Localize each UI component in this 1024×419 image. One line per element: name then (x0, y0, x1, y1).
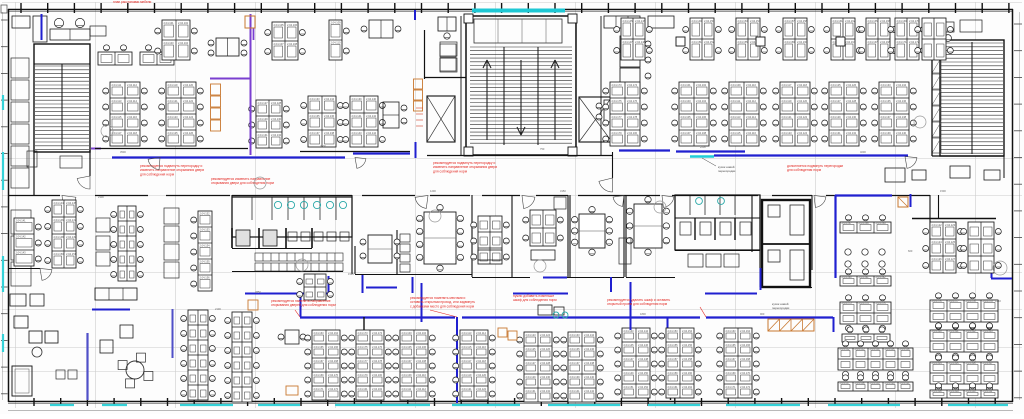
svg-text:2.04.136: 2.04.136 (584, 347, 595, 351)
svg-text:для соблюдения норм: для соблюдения норм (140, 172, 175, 176)
svg-text:2.04.170: 2.04.170 (740, 371, 751, 375)
svg-text:2.04.165: 2.04.165 (314, 345, 325, 349)
svg-text:2.04.104: 2.04.104 (416, 331, 427, 335)
svg-text:2.04.112: 2.04.112 (746, 99, 756, 103)
svg-text:2.04.134: 2.04.134 (896, 83, 907, 87)
svg-text:2.04.141: 2.04.141 (570, 389, 581, 393)
svg-text:2.04.104: 2.04.104 (932, 361, 943, 365)
svg-text:2.04.126: 2.04.126 (183, 131, 194, 135)
svg-text:2.04.115: 2.04.115 (112, 115, 122, 119)
svg-text:2.04.145: 2.04.145 (624, 343, 635, 347)
svg-text:шкаф для соблюдения норм: шкаф для соблюдения норм (513, 298, 557, 302)
svg-text:2.04.109: 2.04.109 (402, 373, 413, 377)
svg-text:2.04.118: 2.04.118 (127, 131, 137, 135)
svg-text:2.04.147: 2.04.147 (66, 218, 77, 222)
svg-text:2.04.102: 2.04.102 (966, 329, 977, 333)
svg-text:2.04.154: 2.04.154 (682, 329, 693, 333)
svg-text:2.04.112: 2.04.112 (416, 387, 426, 391)
svg-text:2.04.105: 2.04.105 (681, 115, 692, 119)
svg-text:2.04.169: 2.04.169 (897, 19, 908, 23)
svg-text:2.04.112: 2.04.112 (840, 347, 850, 351)
svg-text:2.04.171: 2.04.171 (897, 40, 908, 44)
svg-text:2.04.141: 2.04.141 (16, 219, 27, 223)
svg-text:2.04.113: 2.04.113 (731, 115, 741, 119)
svg-text:2.04.108: 2.04.108 (696, 131, 707, 135)
svg-text:2.04.127: 2.04.127 (258, 101, 269, 105)
svg-text:2.04.123: 2.04.123 (782, 131, 793, 135)
svg-text:2.04.149: 2.04.149 (692, 19, 703, 23)
svg-text:600: 600 (908, 249, 913, 253)
svg-text:4000: 4000 (860, 150, 866, 154)
svg-text:2.04.108: 2.04.108 (932, 389, 943, 393)
svg-text:2.04.120: 2.04.120 (183, 83, 194, 87)
svg-text:2.04.176: 2.04.176 (372, 345, 383, 349)
svg-text:2.04.122: 2.04.122 (797, 115, 808, 119)
svg-text:2.04.103: 2.04.103 (983, 329, 994, 333)
svg-text:2.04.115: 2.04.115 (885, 347, 895, 351)
svg-text:2.04.153: 2.04.153 (738, 19, 749, 23)
svg-text:2.04.167: 2.04.167 (868, 40, 879, 44)
svg-text:2.04.172: 2.04.172 (328, 387, 339, 391)
svg-text:2.04.125: 2.04.125 (526, 347, 537, 351)
svg-text:2.04.176: 2.04.176 (932, 299, 943, 303)
svg-text:2.04.168: 2.04.168 (328, 359, 339, 363)
svg-text:2.04.153: 2.04.153 (200, 228, 211, 232)
svg-text:2.04.118: 2.04.118 (476, 359, 486, 363)
svg-text:2.04.130: 2.04.130 (540, 375, 551, 379)
svg-text:2.04.166: 2.04.166 (880, 19, 891, 23)
svg-text:2.04.101: 2.04.101 (164, 21, 175, 25)
svg-text:2.04.148: 2.04.148 (54, 235, 65, 239)
svg-text:2.04.157: 2.04.157 (668, 357, 679, 361)
svg-text:открывания двери для соблюдени: открывания двери для соблюдения норм (211, 181, 275, 185)
svg-text:2.04.101: 2.04.101 (949, 329, 960, 333)
svg-text:2.04.119: 2.04.119 (462, 373, 472, 377)
svg-text:2.04.121: 2.04.121 (168, 99, 179, 103)
svg-text:2.04.109: 2.04.109 (949, 389, 960, 393)
svg-text:2.04.170: 2.04.170 (328, 373, 339, 377)
svg-text:2.04.132: 2.04.132 (846, 131, 857, 135)
svg-text:1240: 1240 (995, 299, 1001, 303)
svg-text:2.04.140: 2.04.140 (896, 131, 907, 135)
svg-text:2.04.104: 2.04.104 (178, 41, 189, 45)
svg-text:2.04.109: 2.04.109 (331, 21, 342, 25)
svg-text:2.04.150: 2.04.150 (54, 252, 65, 256)
svg-text:2.04.177: 2.04.177 (612, 115, 623, 119)
svg-text:2200: 2200 (700, 145, 706, 149)
svg-text:2.04.106: 2.04.106 (696, 115, 707, 119)
svg-text:2.04.111: 2.04.111 (983, 389, 993, 393)
svg-text:2.04.174: 2.04.174 (627, 83, 638, 87)
svg-text:2.04.168: 2.04.168 (740, 357, 751, 361)
svg-text:2.04.105: 2.04.105 (274, 23, 285, 27)
svg-text:2.04.161: 2.04.161 (833, 19, 844, 23)
svg-text:2.04.127: 2.04.127 (526, 361, 537, 365)
svg-text:2400: 2400 (320, 144, 326, 148)
svg-text:2.04.172: 2.04.172 (909, 40, 920, 44)
svg-text:2.04.124: 2.04.124 (183, 115, 194, 119)
svg-text:2.04.102: 2.04.102 (696, 83, 707, 87)
svg-text:2.04.173: 2.04.173 (358, 331, 369, 335)
svg-text:2.04.108: 2.04.108 (416, 359, 427, 363)
svg-text:2.04.114: 2.04.114 (746, 115, 756, 119)
svg-text:2.04.130: 2.04.130 (271, 117, 282, 121)
svg-text:2.04.147: 2.04.147 (623, 40, 634, 44)
svg-text:2.04.157: 2.04.157 (842, 221, 853, 225)
svg-text:2.04.167: 2.04.167 (314, 359, 325, 363)
svg-text:2.04.159: 2.04.159 (876, 221, 887, 225)
svg-text:2.04.145: 2.04.145 (623, 19, 634, 23)
svg-text:2.04.139: 2.04.139 (881, 131, 892, 135)
svg-text:2.04.141: 2.04.141 (352, 114, 363, 118)
svg-text:2.04.173: 2.04.173 (842, 301, 853, 305)
svg-text:2.04.125: 2.04.125 (831, 83, 842, 87)
svg-text:2.04.126: 2.04.126 (846, 83, 857, 87)
svg-text:2.04.111: 2.04.111 (402, 387, 412, 391)
svg-text:2.04.156: 2.04.156 (200, 276, 211, 280)
svg-text:2.04.133: 2.04.133 (570, 333, 581, 337)
svg-text:2.04.105: 2.04.105 (949, 361, 960, 365)
svg-text:2.04.129: 2.04.129 (526, 375, 537, 379)
svg-text:открывания дверей для соблюден: открывания дверей для соблюдения норм (271, 303, 336, 307)
svg-text:2.04.151: 2.04.151 (66, 252, 77, 256)
svg-text:2.04.136: 2.04.136 (324, 114, 335, 118)
svg-text:2.04.128: 2.04.128 (271, 101, 282, 105)
svg-text:900: 900 (760, 312, 765, 316)
svg-text:2.04.132: 2.04.132 (540, 389, 551, 393)
svg-text:2.04.107: 2.04.107 (983, 361, 994, 365)
svg-text:2.04.128: 2.04.128 (540, 361, 551, 365)
svg-text:2.04.158: 2.04.158 (859, 221, 870, 225)
svg-text:2.04.110: 2.04.110 (746, 83, 756, 87)
svg-text:2.04.142: 2.04.142 (16, 235, 27, 239)
svg-text:2.04.135: 2.04.135 (310, 114, 321, 118)
svg-text:2.04.137: 2.04.137 (881, 115, 892, 119)
svg-text:2.04.110: 2.04.110 (331, 41, 341, 45)
svg-text:2.04.132: 2.04.132 (271, 133, 282, 137)
svg-text:2.04.160: 2.04.160 (797, 40, 808, 44)
svg-text:1200: 1200 (430, 189, 436, 193)
svg-text:2.04.127: 2.04.127 (831, 99, 842, 103)
svg-text:2.04.163: 2.04.163 (726, 329, 737, 333)
svg-text:2.04.114: 2.04.114 (476, 331, 486, 335)
svg-text:2.04.152: 2.04.152 (200, 212, 211, 216)
svg-text:2.04.115: 2.04.115 (731, 131, 741, 135)
svg-text:2.04.159: 2.04.159 (668, 371, 679, 375)
svg-text:2.04.134: 2.04.134 (584, 333, 595, 337)
svg-text:3500: 3500 (120, 150, 126, 154)
svg-text:2.04.123: 2.04.123 (526, 333, 537, 337)
svg-text:2.04.114: 2.04.114 (127, 99, 137, 103)
svg-text:2.04.175: 2.04.175 (876, 301, 887, 305)
svg-text:2.04.161: 2.04.161 (668, 385, 679, 389)
svg-text:2.04.163: 2.04.163 (314, 331, 325, 335)
svg-text:2.04.135: 2.04.135 (881, 99, 892, 103)
svg-text:2.04.160: 2.04.160 (682, 371, 693, 375)
svg-text:2.04.113: 2.04.113 (855, 347, 865, 351)
svg-text:2.04.169: 2.04.169 (726, 371, 737, 375)
svg-text:2.04.143: 2.04.143 (624, 329, 635, 333)
svg-text:2.04.159: 2.04.159 (785, 40, 796, 44)
svg-text:2.04.166: 2.04.166 (328, 345, 339, 349)
svg-text:2.04.148: 2.04.148 (635, 40, 646, 44)
svg-text:2.04.117: 2.04.117 (462, 359, 472, 363)
svg-text:2.04.103: 2.04.103 (164, 41, 175, 45)
svg-text:2.04.113: 2.04.113 (112, 99, 122, 103)
svg-text:2.04.167: 2.04.167 (726, 357, 737, 361)
svg-text:2.04.126: 2.04.126 (932, 257, 943, 261)
svg-text:2.04.133: 2.04.133 (310, 97, 321, 101)
svg-text:2100: 2100 (215, 307, 221, 311)
svg-text:перегородки: перегородки (772, 306, 790, 310)
svg-text:2.04.160: 2.04.160 (842, 275, 853, 279)
svg-text:2.04.178: 2.04.178 (627, 115, 638, 119)
svg-text:2.04.117: 2.04.117 (782, 83, 792, 87)
svg-text:2.04.144: 2.04.144 (54, 201, 65, 205)
svg-text:2.04.162: 2.04.162 (876, 275, 887, 279)
svg-text:2.04.177: 2.04.177 (949, 299, 960, 303)
svg-text:2.04.122: 2.04.122 (932, 223, 943, 227)
svg-text:2.04.169: 2.04.169 (314, 373, 325, 377)
svg-text:2.04.121: 2.04.121 (900, 381, 911, 385)
svg-text:2.04.172: 2.04.172 (740, 385, 751, 389)
svg-text:2.04.148: 2.04.148 (638, 357, 649, 361)
svg-text:2.04.150: 2.04.150 (638, 371, 649, 375)
svg-text:2.04.158: 2.04.158 (682, 357, 693, 361)
svg-text:план расстановки мебели: план расстановки мебели (113, 0, 151, 4)
svg-text:2.04.119: 2.04.119 (870, 381, 880, 385)
svg-text:2.04.106: 2.04.106 (966, 361, 977, 365)
svg-text:2.04.175: 2.04.175 (358, 345, 369, 349)
svg-text:2.04.165: 2.04.165 (726, 343, 737, 347)
svg-text:2.04.103: 2.04.103 (681, 99, 692, 103)
svg-text:2.04.129: 2.04.129 (831, 115, 842, 119)
svg-text:2.04.121: 2.04.121 (462, 387, 473, 391)
svg-text:2.04.143: 2.04.143 (352, 131, 363, 135)
svg-text:2.04.118: 2.04.118 (855, 381, 865, 385)
svg-text:2.04.140: 2.04.140 (584, 375, 595, 379)
svg-text:2.04.162: 2.04.162 (845, 19, 856, 23)
svg-text:2.04.153: 2.04.153 (668, 329, 679, 333)
svg-text:2.04.120: 2.04.120 (885, 381, 896, 385)
svg-text:2.04.127: 2.04.127 (945, 257, 956, 261)
svg-text:2.04.154: 2.04.154 (200, 244, 211, 248)
svg-text:2300: 2300 (98, 195, 104, 199)
svg-text:2.04.144: 2.04.144 (366, 131, 377, 135)
svg-text:2.04.114: 2.04.114 (870, 347, 880, 351)
svg-text:2.04.108: 2.04.108 (287, 42, 298, 46)
svg-text:2.04.104: 2.04.104 (696, 99, 707, 103)
svg-text:2.04.124: 2.04.124 (797, 131, 808, 135)
svg-text:2.04.133: 2.04.133 (881, 83, 892, 87)
svg-text:2850: 2850 (255, 290, 261, 294)
svg-text:для соблюдения норм: для соблюдения норм (787, 168, 822, 172)
svg-text:2.04.146: 2.04.146 (54, 218, 65, 222)
svg-text:2.04.155: 2.04.155 (668, 343, 679, 347)
svg-text:2.04.142: 2.04.142 (584, 389, 595, 393)
svg-text:2.04.131: 2.04.131 (526, 389, 537, 393)
svg-text:750: 750 (540, 147, 545, 151)
svg-text:2.04.178: 2.04.178 (372, 359, 383, 363)
svg-text:2.04.107: 2.04.107 (402, 359, 413, 363)
svg-text:2.04.176: 2.04.176 (627, 99, 638, 103)
svg-text:2.04.106: 2.04.106 (287, 23, 298, 27)
svg-text:2.04.120: 2.04.120 (476, 373, 487, 377)
svg-text:2.04.156: 2.04.156 (682, 343, 693, 347)
svg-text:2.04.116: 2.04.116 (746, 131, 756, 135)
svg-text:2.04.151: 2.04.151 (692, 40, 703, 44)
svg-text:2.04.107: 2.04.107 (681, 131, 692, 135)
svg-text:2.04.164: 2.04.164 (740, 329, 751, 333)
svg-text:2.04.102: 2.04.102 (178, 21, 189, 25)
svg-text:2.04.135: 2.04.135 (570, 347, 581, 351)
svg-text:2.04.113: 2.04.113 (462, 331, 472, 335)
svg-text:2.04.137: 2.04.137 (310, 131, 321, 135)
svg-text:2.04.177: 2.04.177 (358, 359, 369, 363)
svg-text:2.04.107: 2.04.107 (274, 42, 285, 46)
svg-text:2.04.115: 2.04.115 (462, 345, 472, 349)
svg-text:2.04.142: 2.04.142 (366, 114, 377, 118)
svg-text:2.04.149: 2.04.149 (66, 235, 77, 239)
svg-text:2.04.118: 2.04.118 (797, 83, 807, 87)
svg-text:2.04.116: 2.04.116 (127, 115, 137, 119)
svg-text:2.04.178: 2.04.178 (966, 299, 977, 303)
svg-text:2.04.111: 2.04.111 (112, 83, 122, 87)
svg-text:2.04.171: 2.04.171 (726, 385, 737, 389)
svg-text:2.04.162: 2.04.162 (682, 385, 693, 389)
svg-text:2.04.164: 2.04.164 (328, 331, 339, 335)
svg-text:2.04.139: 2.04.139 (352, 97, 363, 101)
svg-text:2.04.139: 2.04.139 (570, 375, 581, 379)
svg-text:открытый проем для соблюдения: открытый проем для соблюдения норм (607, 302, 668, 306)
svg-text:2.04.179: 2.04.179 (612, 131, 623, 135)
svg-text:2.04.119: 2.04.119 (168, 83, 178, 87)
svg-text:2.04.155: 2.04.155 (738, 40, 749, 44)
svg-text:2.04.100: 2.04.100 (932, 329, 943, 333)
svg-text:2.04.158: 2.04.158 (797, 19, 808, 23)
svg-text:2.04.145: 2.04.145 (66, 201, 77, 205)
svg-text:2.04.152: 2.04.152 (638, 385, 649, 389)
svg-text:2.04.140: 2.04.140 (366, 97, 377, 101)
svg-text:2.04.151: 2.04.151 (624, 385, 635, 389)
svg-text:2.04.124: 2.04.124 (540, 333, 551, 337)
svg-text:1500: 1500 (940, 189, 946, 193)
svg-text:2.04.173: 2.04.173 (612, 83, 623, 87)
svg-text:2.04.120: 2.04.120 (797, 99, 808, 103)
svg-text:2.04.146: 2.04.146 (635, 19, 646, 23)
svg-text:2.04.122: 2.04.122 (476, 387, 487, 391)
svg-text:2.04.100: 2.04.100 (627, 131, 638, 135)
svg-text:2.04.143: 2.04.143 (16, 251, 27, 255)
svg-text:2.04.102: 2.04.102 (372, 387, 383, 391)
svg-text:2.04.123: 2.04.123 (168, 115, 179, 119)
svg-text:2.04.109: 2.04.109 (731, 83, 742, 87)
svg-text:2.04.111: 2.04.111 (731, 99, 741, 103)
svg-text:2.04.161: 2.04.161 (859, 275, 870, 279)
svg-text:2.04.101: 2.04.101 (681, 83, 692, 87)
svg-text:2.04.174: 2.04.174 (859, 301, 870, 305)
svg-text:2.04.144: 2.04.144 (638, 329, 649, 333)
svg-text:2.04.110: 2.04.110 (416, 373, 426, 377)
svg-text:для соблюдения норм: для соблюдения норм (433, 169, 468, 173)
svg-text:2.04.174: 2.04.174 (372, 331, 383, 335)
svg-text:2.04.147: 2.04.147 (624, 357, 635, 361)
svg-text:2.04.152: 2.04.152 (704, 40, 715, 44)
svg-text:2.04.150: 2.04.150 (704, 19, 715, 23)
svg-text:2.04.119: 2.04.119 (782, 99, 792, 103)
svg-text:2.04.164: 2.04.164 (845, 40, 856, 44)
svg-text:2.04.149: 2.04.149 (624, 371, 635, 375)
svg-text:2.04.134: 2.04.134 (324, 97, 335, 101)
svg-text:2.04.155: 2.04.155 (200, 260, 211, 264)
svg-text:2.04.138: 2.04.138 (584, 361, 595, 365)
svg-text:2.04.117: 2.04.117 (840, 381, 850, 385)
svg-text:2.04.116: 2.04.116 (476, 345, 486, 349)
svg-text:2.04.121: 2.04.121 (782, 115, 793, 119)
svg-text:1800: 1800 (640, 312, 646, 316)
svg-text:2.04.168: 2.04.168 (880, 40, 891, 44)
svg-text:с добавками место для соблюден: с добавками место для соблюдения норм (410, 304, 475, 308)
svg-text:2.04.100: 2.04.100 (372, 373, 383, 377)
svg-text:перегородки: перегородки (718, 169, 736, 173)
svg-text:2.04.101: 2.04.101 (358, 387, 369, 391)
svg-text:2.04.166: 2.04.166 (740, 343, 751, 347)
svg-text:2.04.165: 2.04.165 (868, 19, 879, 23)
svg-text:2.04.138: 2.04.138 (324, 131, 335, 135)
svg-text:2.04.124: 2.04.124 (932, 240, 943, 244)
svg-text:2.04.125: 2.04.125 (168, 131, 179, 135)
svg-text:2.04.129: 2.04.129 (258, 117, 269, 121)
svg-text:2.04.116: 2.04.116 (900, 347, 910, 351)
svg-text:2.04.105: 2.04.105 (402, 345, 413, 349)
svg-text:2.04.146: 2.04.146 (638, 343, 649, 347)
svg-text:2.04.106: 2.04.106 (416, 345, 427, 349)
svg-text:2.04.157: 2.04.157 (785, 19, 796, 23)
svg-text:2.04.138: 2.04.138 (896, 115, 907, 119)
svg-text:2.04.137: 2.04.137 (570, 361, 581, 365)
svg-text:2.04.136: 2.04.136 (896, 99, 907, 103)
svg-text:2.04.126: 2.04.126 (540, 347, 551, 351)
svg-text:2.04.179: 2.04.179 (983, 299, 994, 303)
svg-text:2.04.112: 2.04.112 (127, 83, 137, 87)
svg-text:2.04.131: 2.04.131 (831, 131, 842, 135)
svg-text:2.04.122: 2.04.122 (183, 99, 194, 103)
svg-text:2.04.171: 2.04.171 (314, 387, 325, 391)
svg-text:2.04.130: 2.04.130 (846, 115, 857, 119)
svg-text:2.04.128: 2.04.128 (846, 99, 857, 103)
svg-text:2.04.110: 2.04.110 (966, 389, 976, 393)
svg-text:2.04.154: 2.04.154 (750, 19, 761, 23)
svg-text:1520: 1520 (348, 272, 354, 276)
svg-text:2.04.175: 2.04.175 (612, 99, 623, 103)
svg-text:2.04.125: 2.04.125 (945, 240, 956, 244)
svg-text:2.04.131: 2.04.131 (258, 133, 269, 137)
svg-text:2.04.123: 2.04.123 (945, 223, 956, 227)
svg-text:2.04.103: 2.04.103 (402, 331, 413, 335)
svg-text:2.04.179: 2.04.179 (358, 373, 369, 377)
svg-text:3150: 3150 (560, 189, 566, 193)
svg-text:2.04.170: 2.04.170 (909, 19, 920, 23)
